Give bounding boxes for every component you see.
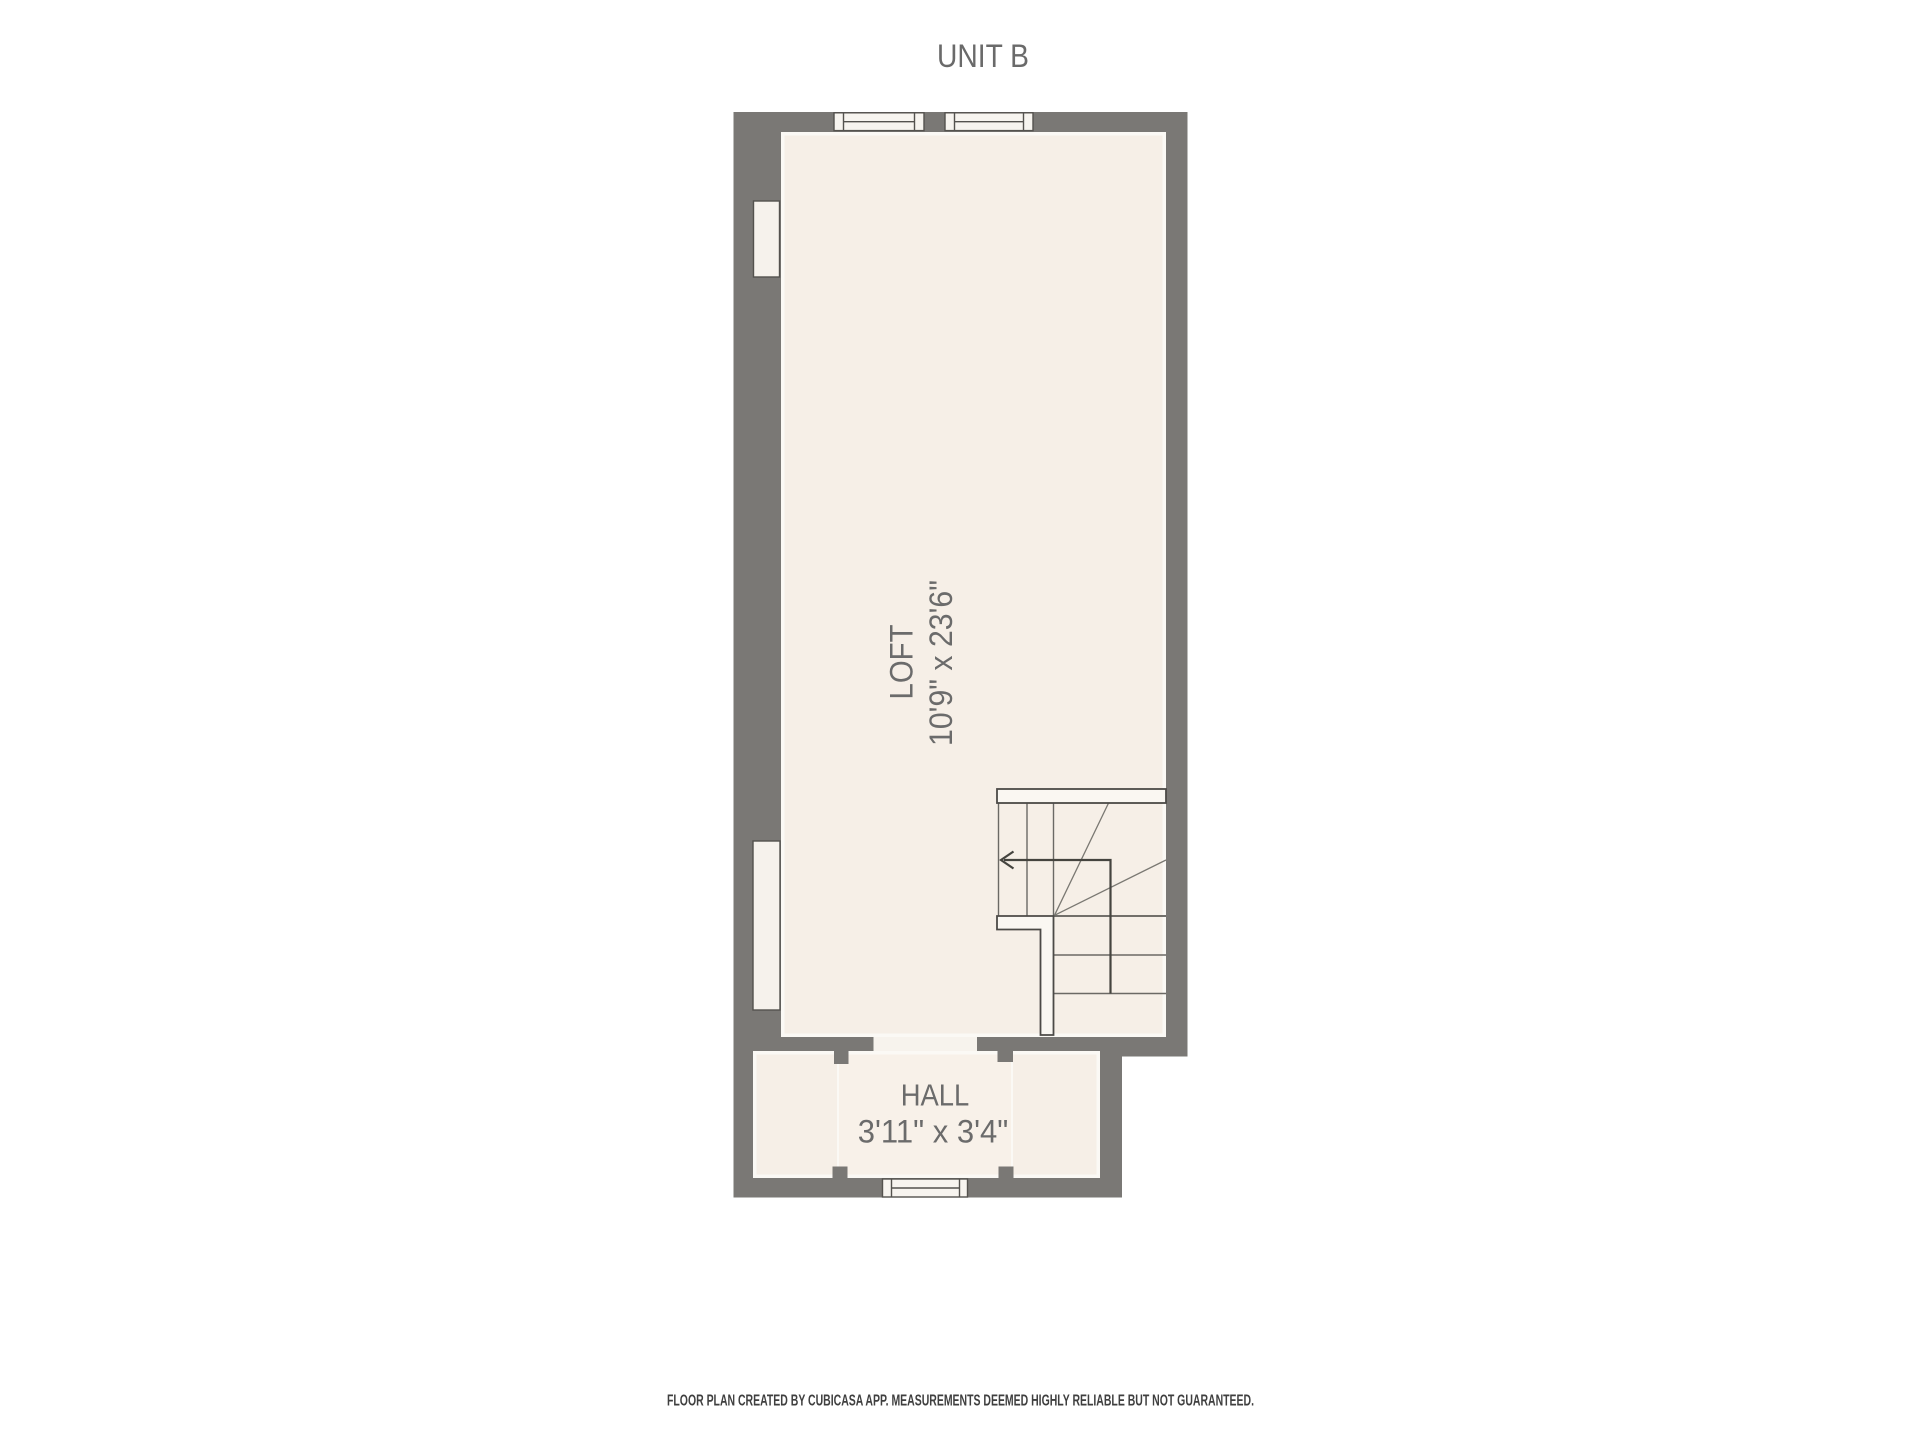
svg-text:HALL: HALL bbox=[901, 1078, 970, 1113]
svg-text:LOFT: LOFT bbox=[884, 625, 920, 700]
svg-text:FLOOR PLAN CREATED BY CUBICASA: FLOOR PLAN CREATED BY CUBICASA APP. MEAS… bbox=[667, 1393, 1254, 1410]
svg-text:UNIT B: UNIT B bbox=[937, 38, 1029, 74]
svg-text:10'9" x 23'6": 10'9" x 23'6" bbox=[923, 580, 959, 746]
svg-text:3'11" x 3'4": 3'11" x 3'4" bbox=[858, 1114, 1009, 1150]
